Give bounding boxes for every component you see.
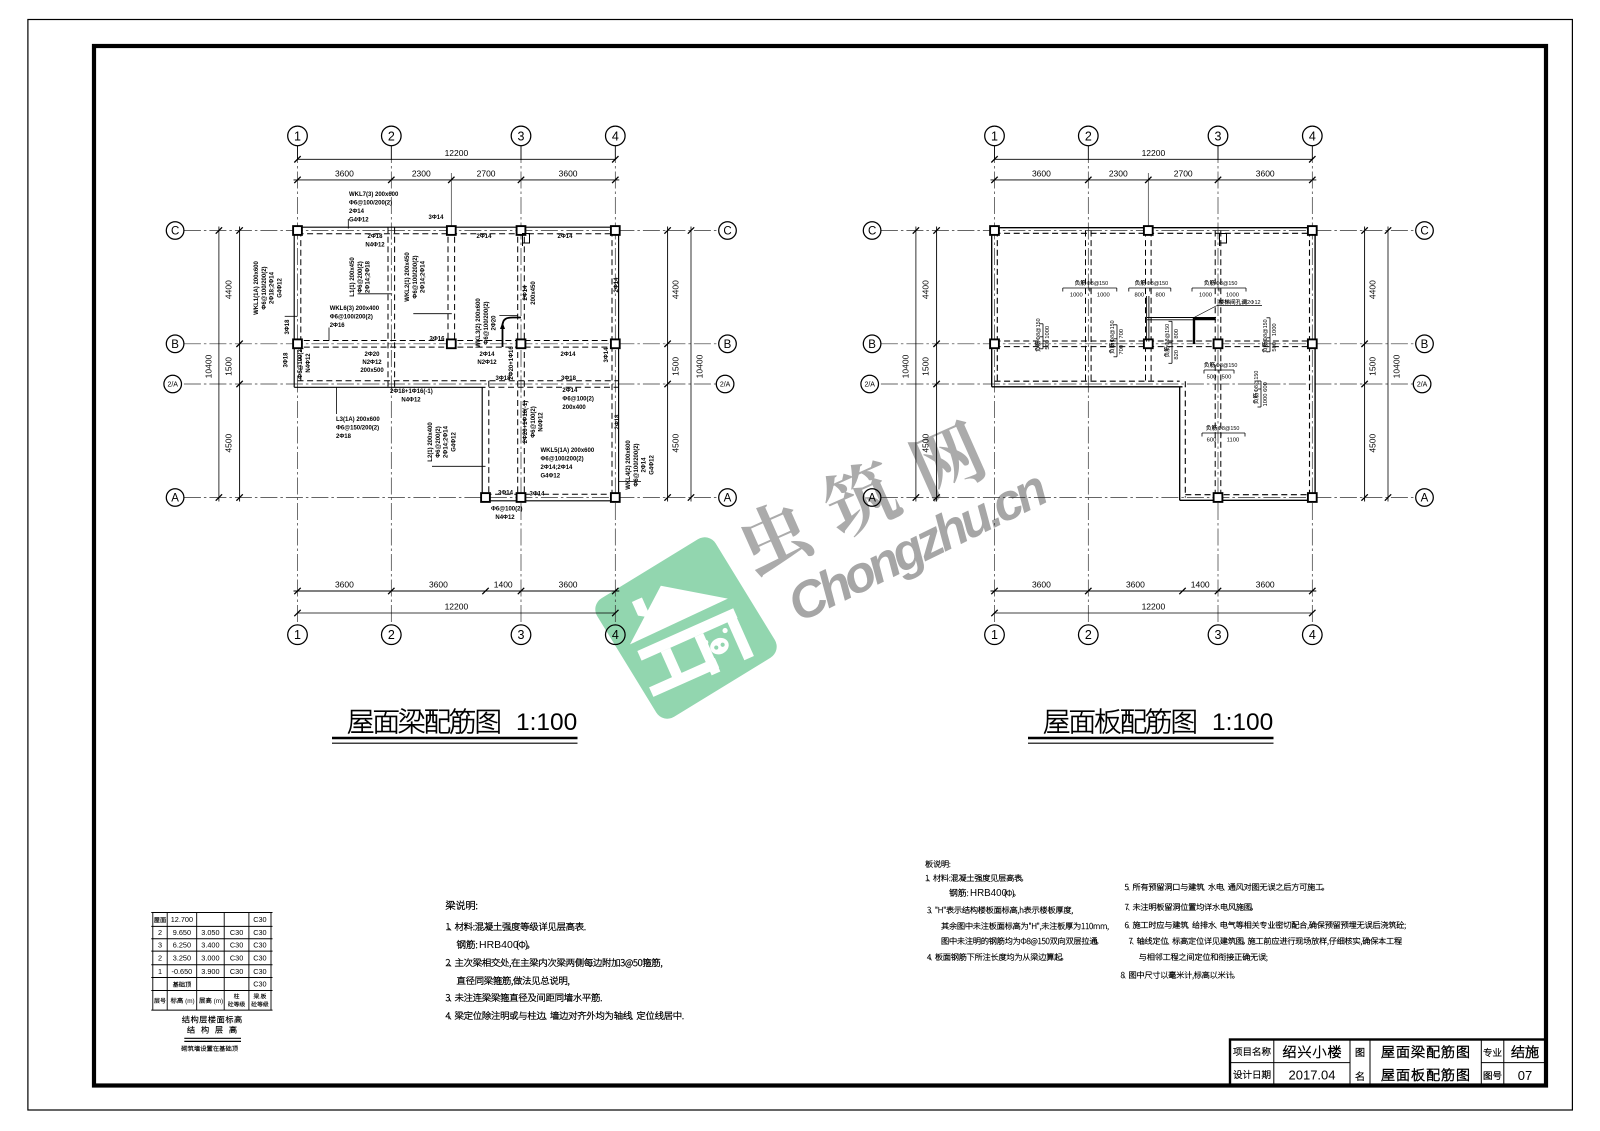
svg-text:3Φ14: 3Φ14 bbox=[498, 491, 514, 497]
svg-text:Φ6@100/200(2): Φ6@100/200(2) bbox=[484, 301, 490, 344]
svg-text:N4Φ12: N4Φ12 bbox=[401, 398, 421, 404]
svg-text:1500: 1500 bbox=[921, 357, 931, 376]
svg-text:B: B bbox=[171, 339, 179, 351]
svg-text:Φ6@100(2): Φ6@100(2) bbox=[491, 507, 522, 513]
svg-text:2Φ18: 2Φ18 bbox=[368, 234, 384, 240]
svg-text:2Φ20: 2Φ20 bbox=[492, 315, 498, 331]
svg-text:2: 2 bbox=[158, 928, 162, 937]
svg-text:2/A: 2/A bbox=[167, 382, 178, 389]
svg-text:2/A: 2/A bbox=[864, 382, 875, 389]
svg-text:800: 800 bbox=[1134, 293, 1144, 299]
svg-text:2Φ14: 2Φ14 bbox=[561, 352, 577, 358]
svg-text:(m): (m) bbox=[185, 998, 195, 1005]
svg-text:6.250: 6.250 bbox=[173, 941, 191, 950]
svg-text:2Φ14: 2Φ14 bbox=[349, 209, 365, 215]
svg-text:L1(1) 200x450: L1(1) 200x450 bbox=[350, 257, 356, 297]
svg-text:12200: 12200 bbox=[1142, 148, 1166, 158]
svg-text:4: 4 bbox=[1309, 129, 1316, 143]
svg-text:G4Φ12: G4Φ12 bbox=[649, 455, 655, 475]
svg-text:Φ6@150/200(2): Φ6@150/200(2) bbox=[336, 426, 379, 432]
svg-text:Φ8@150: Φ8@150 bbox=[1165, 324, 1171, 346]
svg-text:C30: C30 bbox=[253, 954, 266, 963]
svg-text:10400: 10400 bbox=[901, 354, 911, 378]
svg-text:C30: C30 bbox=[230, 941, 243, 950]
svg-text:1100: 1100 bbox=[1227, 438, 1239, 444]
svg-text:G4Φ12: G4Φ12 bbox=[451, 432, 457, 452]
svg-text:2700: 2700 bbox=[477, 169, 496, 179]
svg-text:3600: 3600 bbox=[429, 580, 448, 590]
svg-text:C30: C30 bbox=[253, 941, 266, 950]
svg-text:3Φ18: 3Φ18 bbox=[561, 376, 577, 382]
svg-text:1000: 1000 bbox=[1045, 326, 1051, 339]
svg-text:1400: 1400 bbox=[494, 580, 513, 590]
svg-text:Φ8@150: Φ8@150 bbox=[1216, 363, 1238, 369]
svg-text:3600: 3600 bbox=[335, 169, 354, 179]
svg-text:L2(1) 200x400: L2(1) 200x400 bbox=[428, 422, 434, 462]
svg-text:C30: C30 bbox=[253, 967, 266, 976]
svg-text:Φ6@100(2): Φ6@100(2) bbox=[298, 347, 304, 378]
svg-text:3: 3 bbox=[518, 129, 525, 143]
svg-text:N4Φ12: N4Φ12 bbox=[306, 353, 312, 373]
svg-text:4400: 4400 bbox=[671, 280, 681, 299]
svg-text:1000: 1000 bbox=[1226, 293, 1239, 299]
svg-text:2017.04: 2017.04 bbox=[1289, 1068, 1336, 1083]
svg-text:Φ6@100(2): Φ6@100(2) bbox=[531, 406, 537, 437]
svg-text:3600: 3600 bbox=[1256, 169, 1275, 179]
svg-text:A: A bbox=[1421, 493, 1429, 505]
svg-text:500: 500 bbox=[1045, 340, 1051, 350]
svg-text:A: A bbox=[724, 493, 732, 505]
svg-text:4: 4 bbox=[1309, 628, 1316, 642]
svg-text:800: 800 bbox=[1174, 329, 1180, 339]
svg-text:3.050: 3.050 bbox=[201, 928, 219, 937]
svg-text:2: 2 bbox=[1085, 129, 1092, 143]
svg-text:C: C bbox=[171, 226, 179, 238]
svg-text:2Φ14: 2Φ14 bbox=[477, 234, 493, 240]
svg-text:N4Φ12: N4Φ12 bbox=[495, 515, 515, 521]
svg-text:3600: 3600 bbox=[335, 580, 354, 590]
svg-text:200x400: 200x400 bbox=[562, 405, 586, 411]
svg-text:2Φ14: 2Φ14 bbox=[642, 457, 648, 473]
svg-text:2Φ12: 2Φ12 bbox=[1247, 300, 1261, 306]
svg-text:Φ8@150: Φ8@150 bbox=[1086, 281, 1108, 287]
svg-text:C30: C30 bbox=[230, 928, 243, 937]
svg-text:2700: 2700 bbox=[1174, 169, 1193, 179]
svg-text:3.000: 3.000 bbox=[201, 954, 219, 963]
svg-text:4500: 4500 bbox=[224, 433, 234, 452]
svg-text:1:100: 1:100 bbox=[1212, 709, 1273, 736]
svg-text:3Φ16: 3Φ16 bbox=[430, 337, 446, 343]
svg-text:10400: 10400 bbox=[1392, 354, 1402, 378]
svg-text:G4Φ12: G4Φ12 bbox=[349, 218, 369, 224]
svg-text:1: 1 bbox=[991, 628, 998, 642]
svg-text:2: 2 bbox=[388, 129, 395, 143]
svg-text:2300: 2300 bbox=[1109, 169, 1128, 179]
svg-text:2/A: 2/A bbox=[720, 382, 731, 389]
svg-text:3600: 3600 bbox=[1256, 580, 1275, 590]
svg-text:2Φ14;2Φ14: 2Φ14;2Φ14 bbox=[541, 465, 574, 471]
svg-text:-0.650: -0.650 bbox=[172, 967, 193, 976]
svg-text:2Φ18;2Φ14: 2Φ18;2Φ14 bbox=[270, 271, 276, 304]
svg-text:Φ6@100/200(2): Φ6@100/200(2) bbox=[330, 315, 373, 321]
svg-text:Φ6@200(2): Φ6@200(2) bbox=[358, 261, 364, 292]
svg-text:3600: 3600 bbox=[1032, 169, 1051, 179]
svg-text:B: B bbox=[724, 339, 732, 351]
svg-text:2Φ18: 2Φ18 bbox=[336, 434, 352, 440]
svg-text:N2Φ12: N2Φ12 bbox=[477, 360, 497, 366]
svg-text:C: C bbox=[868, 226, 876, 238]
svg-text:C: C bbox=[1420, 226, 1428, 238]
svg-text:200x450: 200x450 bbox=[531, 281, 537, 305]
svg-text:700: 700 bbox=[1119, 345, 1125, 355]
svg-text:2Φ14: 2Φ14 bbox=[480, 352, 496, 358]
svg-text:Φ6@100/200(2): Φ6@100/200(2) bbox=[262, 266, 268, 309]
svg-text:12200: 12200 bbox=[445, 148, 469, 158]
svg-text:4500: 4500 bbox=[671, 433, 681, 452]
svg-text:Φ8@150: Φ8@150 bbox=[1263, 319, 1269, 341]
svg-text:C30: C30 bbox=[253, 915, 266, 924]
svg-text:WKL4(2) 200x600: WKL4(2) 200x600 bbox=[626, 440, 632, 490]
svg-text:2Φ20: 2Φ20 bbox=[365, 352, 381, 358]
svg-text:1000: 1000 bbox=[1070, 293, 1083, 299]
svg-text:L3(1A) 200x600: L3(1A) 200x600 bbox=[336, 417, 380, 423]
svg-text:Φ6@100/200(2): Φ6@100/200(2) bbox=[634, 443, 640, 486]
svg-text:Φ8@150: Φ8@150 bbox=[1110, 320, 1116, 342]
svg-text:WKL5(1A) 200x600: WKL5(1A) 200x600 bbox=[541, 448, 595, 454]
svg-text:1000: 1000 bbox=[1272, 323, 1278, 336]
svg-text:3Φ18: 3Φ18 bbox=[285, 319, 291, 335]
svg-text:G4Φ12: G4Φ12 bbox=[541, 474, 561, 480]
svg-text:1500: 1500 bbox=[1368, 357, 1378, 376]
svg-text:2300: 2300 bbox=[412, 169, 431, 179]
svg-text:3: 3 bbox=[518, 628, 525, 642]
svg-text:3600: 3600 bbox=[1126, 580, 1145, 590]
svg-text:HRB400: HRB400 bbox=[479, 939, 519, 951]
svg-text:G4Φ12: G4Φ12 bbox=[277, 278, 283, 298]
svg-text:4400: 4400 bbox=[1368, 280, 1378, 299]
svg-text:3600: 3600 bbox=[559, 580, 578, 590]
svg-text:Φ6@100/200(2): Φ6@100/200(2) bbox=[413, 255, 419, 298]
svg-text:Φ8@150: Φ8@150 bbox=[1036, 318, 1042, 340]
svg-text:2Φ14: 2Φ14 bbox=[523, 285, 529, 301]
svg-text:3: 3 bbox=[1215, 129, 1222, 143]
svg-text:WKL1(1A) 200x600: WKL1(1A) 200x600 bbox=[254, 260, 260, 314]
svg-text:2: 2 bbox=[1085, 628, 1092, 642]
svg-text:Φ6@100(2): Φ6@100(2) bbox=[562, 397, 593, 403]
svg-text:4: 4 bbox=[612, 129, 619, 143]
svg-text:3Φ14: 3Φ14 bbox=[530, 492, 546, 498]
svg-text:700: 700 bbox=[1119, 329, 1125, 339]
svg-text:3Φ14: 3Φ14 bbox=[429, 215, 445, 221]
svg-text:3Φ18: 3Φ18 bbox=[284, 352, 290, 368]
svg-text:Φ6@200(2): Φ6@200(2) bbox=[436, 426, 442, 457]
svg-text:1000: 1000 bbox=[1097, 293, 1110, 299]
svg-text:2Φ20+1Φ16(-1): 2Φ20+1Φ16(-1) bbox=[523, 401, 529, 444]
svg-text:500: 500 bbox=[1222, 375, 1232, 381]
svg-text:800: 800 bbox=[1155, 293, 1165, 299]
svg-text:1500: 1500 bbox=[224, 357, 234, 376]
svg-text:C30: C30 bbox=[253, 928, 266, 937]
svg-text:Φ6@100/200(2): Φ6@100/200(2) bbox=[541, 457, 584, 463]
svg-text:1000: 1000 bbox=[1199, 293, 1212, 299]
svg-text:2Φ14: 2Φ14 bbox=[562, 388, 578, 394]
svg-text:1000: 1000 bbox=[1263, 394, 1269, 407]
svg-text:2Φ18: 2Φ18 bbox=[615, 414, 621, 430]
svg-text:4: 4 bbox=[612, 628, 619, 642]
svg-text:3600: 3600 bbox=[559, 169, 578, 179]
svg-text:C30: C30 bbox=[230, 967, 243, 976]
svg-text:Φ8@150: Φ8@150 bbox=[1218, 426, 1240, 432]
svg-text:1: 1 bbox=[991, 129, 998, 143]
svg-text:10400: 10400 bbox=[695, 354, 705, 378]
svg-text:3Φ14: 3Φ14 bbox=[604, 347, 610, 363]
svg-text:2: 2 bbox=[158, 954, 162, 963]
svg-text:3.250: 3.250 bbox=[173, 954, 191, 963]
svg-text:1400: 1400 bbox=[1191, 580, 1210, 590]
svg-text:1: 1 bbox=[158, 967, 162, 976]
svg-text:3: 3 bbox=[1215, 628, 1222, 642]
svg-text:C30: C30 bbox=[230, 954, 243, 963]
svg-text:3600: 3600 bbox=[1032, 580, 1051, 590]
svg-text:07: 07 bbox=[1518, 1068, 1532, 1083]
svg-text:WKL3(2) 200x600: WKL3(2) 200x600 bbox=[476, 298, 482, 348]
svg-text:C: C bbox=[723, 226, 731, 238]
svg-text:3.900: 3.900 bbox=[201, 967, 219, 976]
svg-text:2Φ20+1Φ16: 2Φ20+1Φ16 bbox=[509, 346, 515, 380]
svg-text:600: 600 bbox=[1263, 382, 1269, 392]
svg-text:N4Φ12: N4Φ12 bbox=[365, 243, 385, 249]
svg-text:4500: 4500 bbox=[921, 433, 931, 452]
svg-text:4400: 4400 bbox=[921, 280, 931, 299]
svg-text:2Φ14: 2Φ14 bbox=[558, 234, 574, 240]
svg-text:12200: 12200 bbox=[1142, 602, 1166, 612]
svg-text:WKL2(1) 200x450: WKL2(1) 200x450 bbox=[405, 252, 411, 302]
svg-text:Φ8@150: Φ8@150 bbox=[1216, 281, 1238, 287]
svg-text:1: 1 bbox=[294, 129, 301, 143]
svg-text:Φ8@150: Φ8@150 bbox=[1146, 281, 1168, 287]
svg-text:3.400: 3.400 bbox=[201, 941, 219, 950]
svg-text:B: B bbox=[1421, 339, 1429, 351]
svg-text:9.650: 9.650 bbox=[173, 928, 191, 937]
svg-text:4500: 4500 bbox=[1368, 433, 1378, 452]
svg-text:1: 1 bbox=[294, 628, 301, 642]
svg-text:200x500: 200x500 bbox=[360, 368, 384, 374]
svg-text:Φ6@100/200(2): Φ6@100/200(2) bbox=[349, 201, 392, 207]
svg-text:12.700: 12.700 bbox=[171, 915, 193, 924]
svg-text:4400: 4400 bbox=[224, 280, 234, 299]
svg-text:WKL7(3) 200x600: WKL7(3) 200x600 bbox=[349, 192, 399, 198]
svg-text:A: A bbox=[171, 493, 179, 505]
svg-text:1500: 1500 bbox=[671, 357, 681, 376]
svg-text:500: 500 bbox=[1272, 342, 1278, 352]
svg-text:2Φ18+1Φ16(-1): 2Φ18+1Φ16(-1) bbox=[390, 389, 433, 395]
svg-text:(m): (m) bbox=[214, 998, 224, 1005]
svg-text:3: 3 bbox=[158, 941, 162, 950]
svg-text:600: 600 bbox=[1207, 438, 1217, 444]
svg-text:1:100: 1:100 bbox=[516, 709, 577, 736]
svg-text:500: 500 bbox=[1207, 375, 1217, 381]
svg-text:N4Φ12: N4Φ12 bbox=[539, 412, 545, 432]
svg-text:2Φ14;2Φ14: 2Φ14;2Φ14 bbox=[444, 425, 450, 458]
svg-text:A: A bbox=[868, 493, 876, 505]
svg-text:2Φ16: 2Φ16 bbox=[330, 323, 346, 329]
svg-text:2Φ14: 2Φ14 bbox=[614, 277, 620, 293]
svg-text:820: 820 bbox=[1174, 350, 1180, 360]
svg-text:2/A: 2/A bbox=[1417, 382, 1428, 389]
svg-text:C30: C30 bbox=[253, 980, 266, 989]
svg-text:2Φ14;2Φ18: 2Φ14;2Φ18 bbox=[366, 260, 372, 293]
svg-text:12200: 12200 bbox=[445, 602, 469, 612]
svg-text:N2Φ12: N2Φ12 bbox=[362, 360, 382, 366]
svg-text:HRB400: HRB400 bbox=[970, 888, 1008, 899]
svg-text:B: B bbox=[868, 339, 876, 351]
svg-text:2: 2 bbox=[388, 628, 395, 642]
svg-text:Φ8@150: Φ8@150 bbox=[1254, 371, 1260, 393]
svg-text:10400: 10400 bbox=[204, 354, 214, 378]
svg-text:2Φ14;2Φ14: 2Φ14;2Φ14 bbox=[421, 260, 427, 293]
svg-text:WKL6(3) 200x400: WKL6(3) 200x400 bbox=[330, 306, 380, 312]
